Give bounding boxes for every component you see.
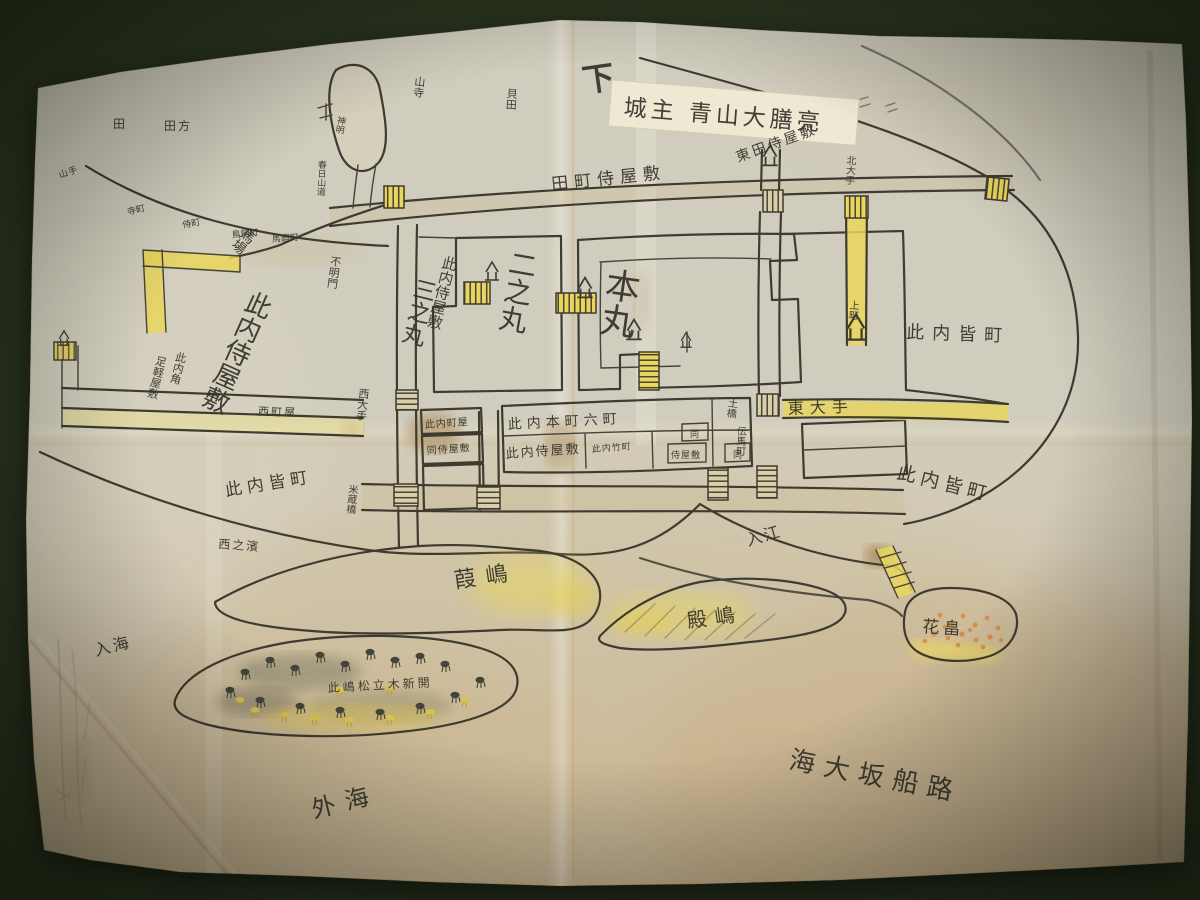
photo-vignette <box>0 0 1200 900</box>
photo-antique-castle-map: 城主 青山大膳亮 下 本丸 二之丸 三之丸 此内侍屋敷 此内侍屋敷 足軽屋敷 此… <box>0 0 1200 900</box>
map-photo-canvas: 城主 青山大膳亮 下 本丸 二之丸 三之丸 此内侍屋敷 此内侍屋敷 足軽屋敷 此… <box>0 0 1200 900</box>
